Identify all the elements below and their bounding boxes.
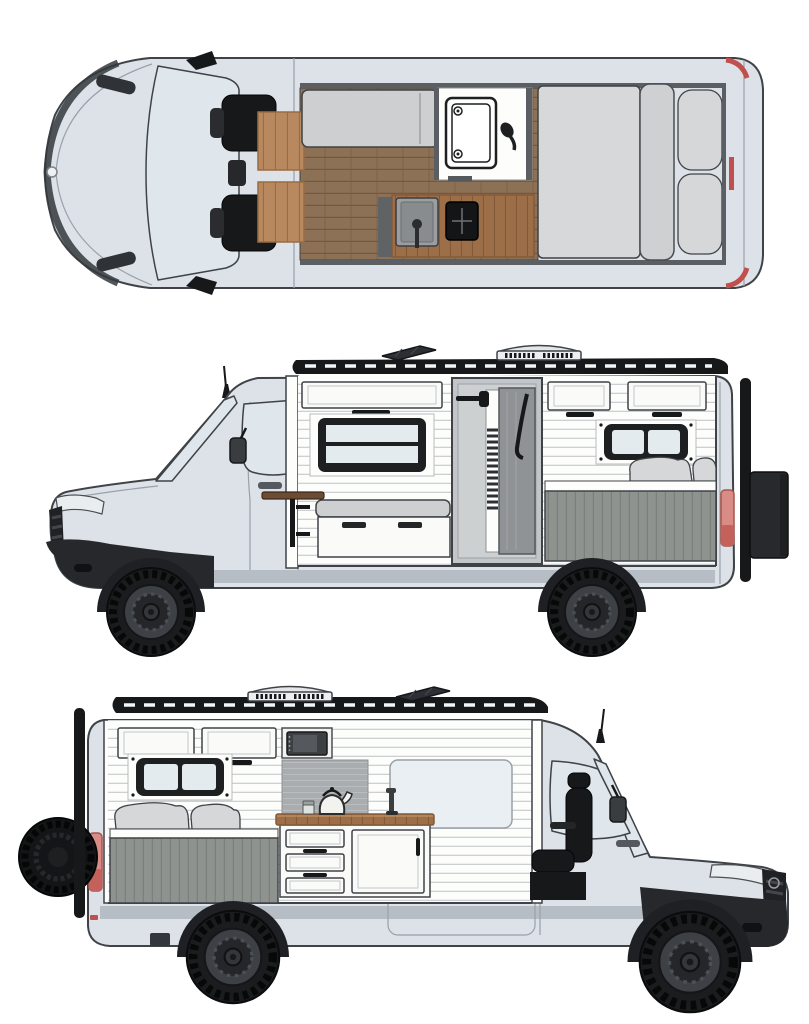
jar (303, 801, 314, 814)
door-handle (416, 838, 420, 856)
kitchen-top (378, 195, 534, 257)
fog-light (74, 564, 92, 572)
armrest (550, 822, 576, 829)
top-floorplan-view (0, 50, 809, 300)
interior-cutaway-passenger (104, 720, 592, 903)
rear-wheel (187, 911, 279, 1003)
bench-seat (316, 500, 450, 557)
kitchen-sink (396, 198, 438, 248)
fog-light (742, 923, 762, 932)
front-wheel (640, 912, 740, 1012)
solar-panel (382, 346, 436, 360)
shower-stall (452, 378, 542, 564)
roof-fan (497, 346, 581, 361)
roof-fan (248, 687, 332, 702)
interior-cutaway-driver (262, 376, 716, 568)
kitchen-end-panel (378, 197, 392, 257)
bed-pillow-1 (115, 803, 189, 829)
passenger-side-cutaway-view (0, 685, 809, 1024)
rearview-mirror (228, 160, 246, 186)
kitchen-drawers (286, 830, 344, 893)
spare-tire (19, 818, 97, 896)
shower-threshold (448, 176, 472, 181)
kitchen-unit (276, 814, 434, 897)
bed-pillow-2 (693, 458, 716, 481)
front-emblem (47, 167, 57, 177)
pillow-1 (678, 90, 722, 170)
rear-ladder (74, 708, 85, 918)
bench-sofa-top (302, 90, 438, 147)
kitchen-cabinet-door (352, 830, 424, 893)
cooktop (446, 202, 478, 240)
bed-bolster (640, 84, 674, 260)
microwave (282, 728, 332, 758)
rear-wall (722, 83, 726, 265)
faucet (415, 224, 419, 248)
bed-top (538, 83, 726, 265)
seat-cushion (532, 850, 574, 872)
bedroom-window (596, 420, 696, 464)
door-handle (258, 482, 282, 489)
bedroom-window (128, 754, 232, 800)
bed-mattress (538, 86, 640, 258)
front-wheel (107, 568, 195, 656)
dinette-table-1 (258, 112, 304, 170)
bed-platform (545, 481, 716, 491)
garage-panel (110, 838, 278, 903)
rear-reflector (90, 915, 98, 920)
bed-pillow-1 (630, 457, 692, 481)
bed-platform (110, 829, 278, 838)
door-handle (616, 840, 640, 847)
rear-wheel (548, 568, 636, 656)
antenna (596, 709, 605, 743)
mud-flap (150, 933, 170, 946)
driver-side-cutaway-view (0, 340, 809, 660)
seat-base (530, 872, 586, 900)
garage-panel (545, 491, 716, 561)
dinette-table-2 (258, 182, 304, 242)
van-conversion-illustration (0, 0, 809, 1024)
awning-window (310, 414, 434, 476)
headrest (568, 773, 590, 788)
rocker-stripe (100, 906, 660, 919)
shower-room (434, 88, 532, 181)
shower-glass-door (499, 388, 535, 554)
pillow-2 (678, 174, 722, 254)
shower-pan (446, 98, 496, 168)
